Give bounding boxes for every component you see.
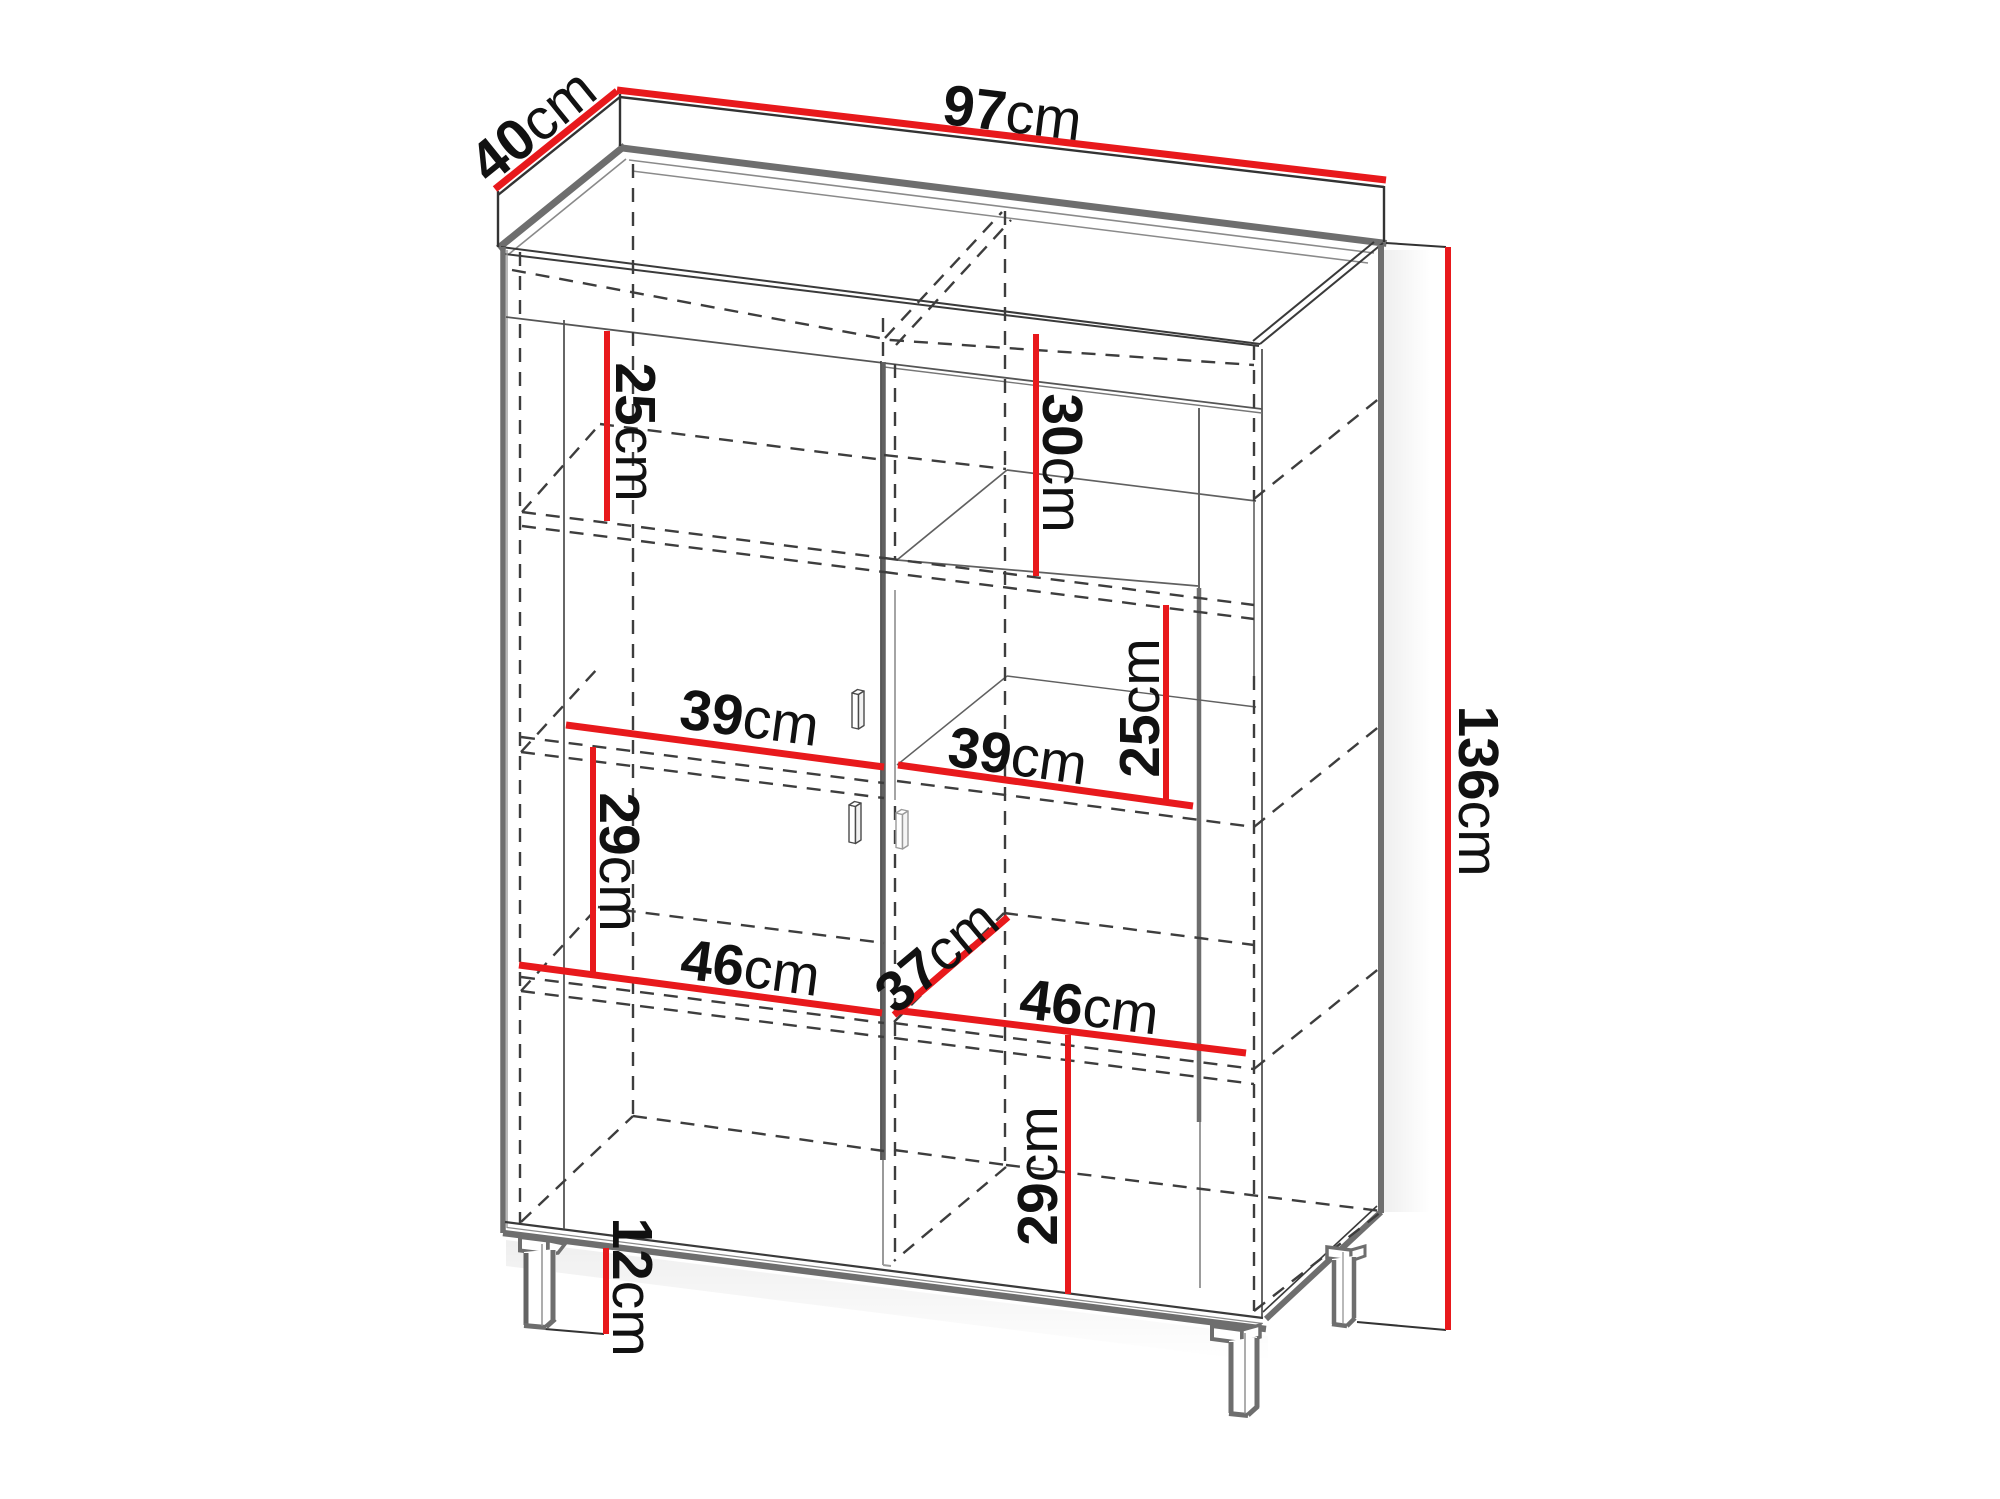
svg-text:136cm: 136cm xyxy=(1446,705,1510,876)
svg-text:30cm: 30cm xyxy=(1030,393,1094,532)
svg-text:29cm: 29cm xyxy=(1006,1106,1070,1245)
svg-text:25cm: 25cm xyxy=(1108,638,1172,777)
svg-text:25cm: 25cm xyxy=(603,362,667,501)
svg-text:12cm: 12cm xyxy=(600,1217,664,1356)
svg-text:29cm: 29cm xyxy=(587,792,651,931)
